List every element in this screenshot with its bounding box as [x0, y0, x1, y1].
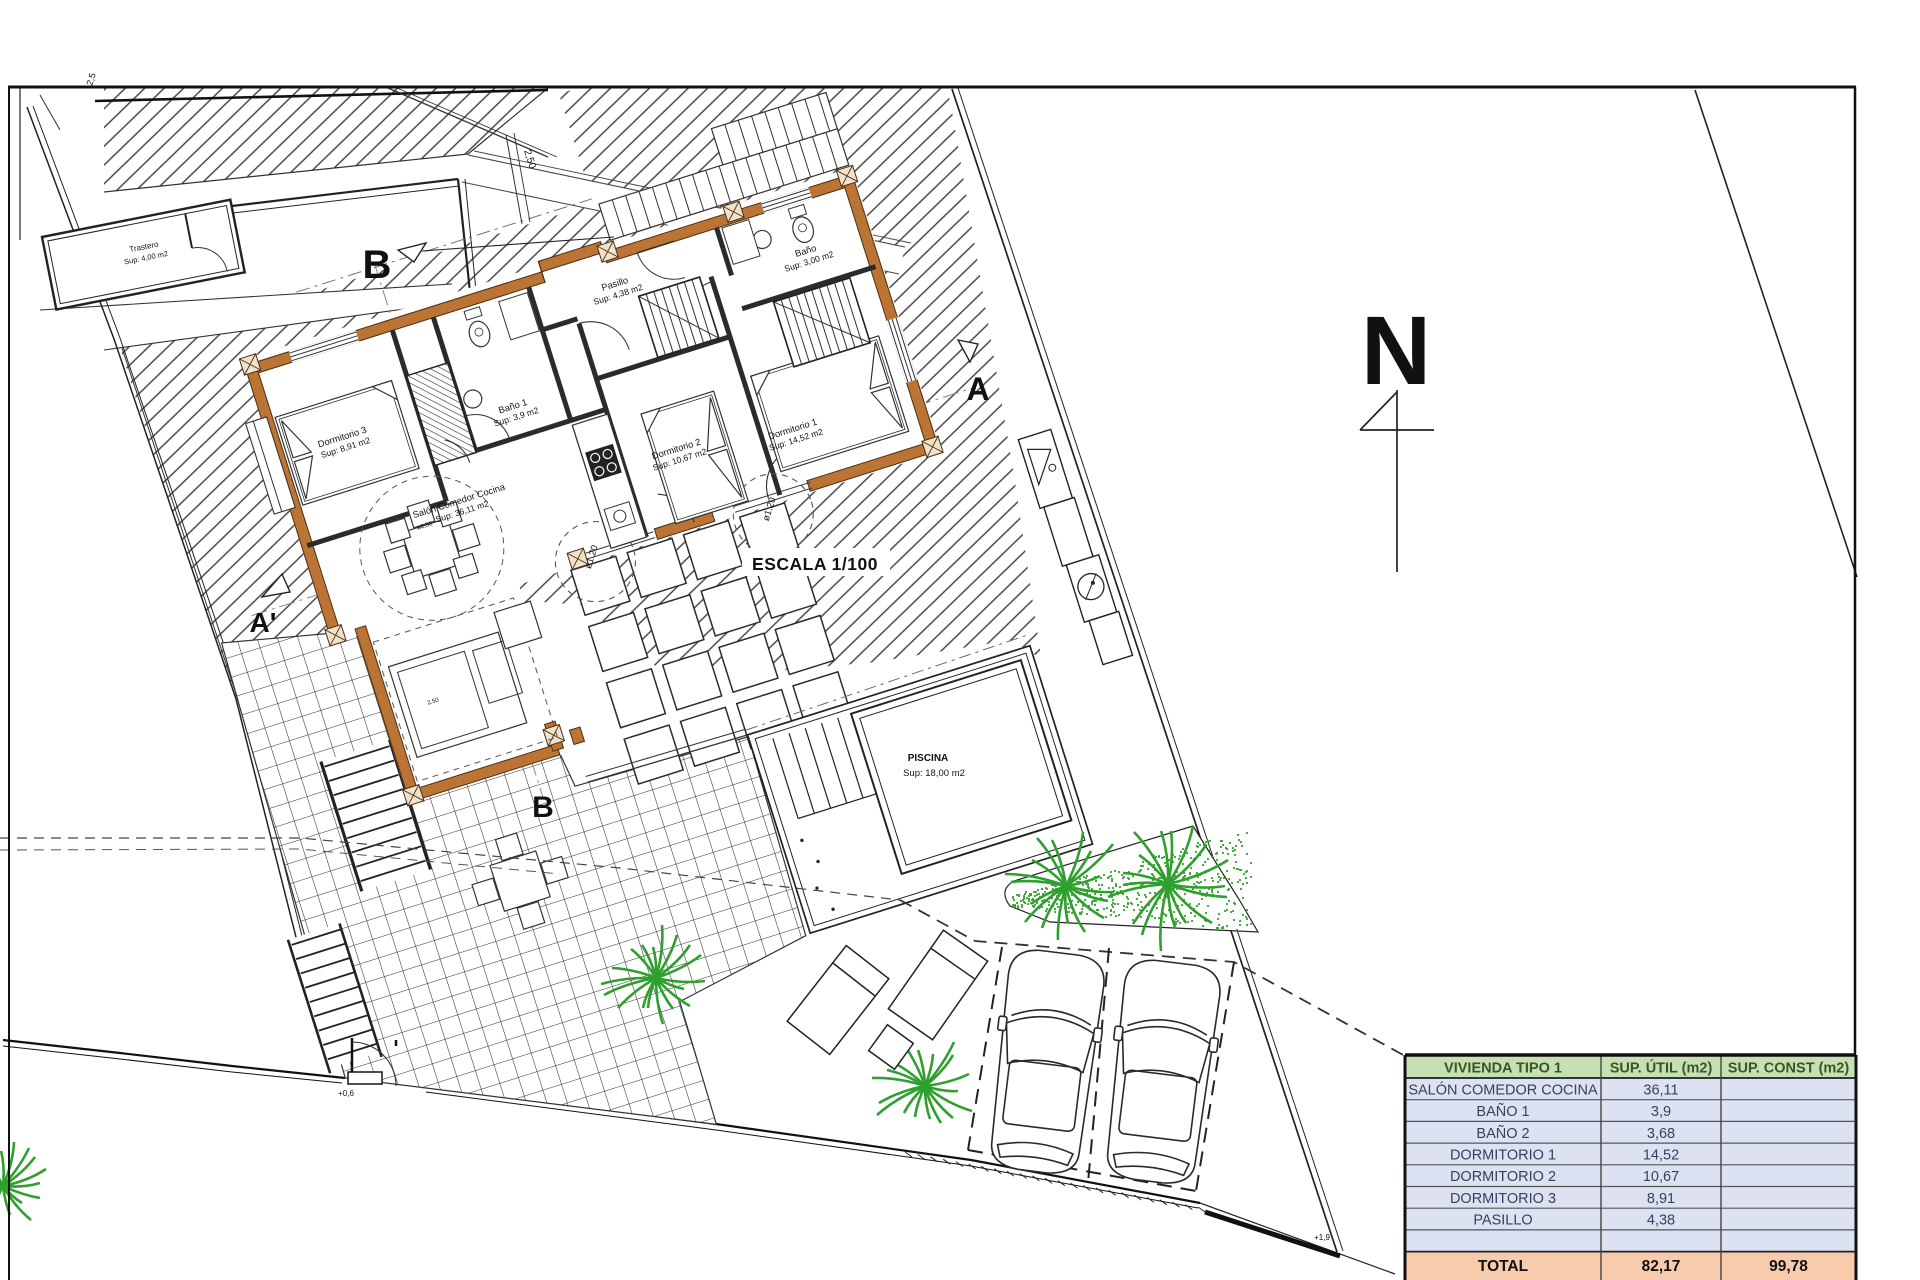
svg-text:VIVIENDA TIPO 1: VIVIENDA TIPO 1: [1444, 1061, 1562, 1077]
svg-text:SUP. ÚTIL (m2): SUP. ÚTIL (m2): [1610, 1059, 1713, 1077]
svg-text:ESCALA 1/100: ESCALA 1/100: [752, 554, 878, 574]
svg-text:Sup: 18,00 m2: Sup: 18,00 m2: [903, 768, 965, 779]
svg-text:10,67: 10,67: [1643, 1169, 1679, 1185]
svg-text:99,78: 99,78: [1769, 1258, 1808, 1275]
svg-text:3,9: 3,9: [1651, 1104, 1671, 1120]
svg-text:B: B: [363, 243, 392, 287]
svg-text:A': A': [250, 607, 277, 638]
svg-text:+1,9: +1,9: [1314, 1233, 1330, 1242]
svg-text:PISCINA: PISCINA: [908, 753, 949, 764]
svg-text:8,91: 8,91: [1647, 1191, 1675, 1207]
svg-text:PASILLO: PASILLO: [1473, 1213, 1532, 1229]
svg-text:N: N: [1361, 296, 1431, 405]
svg-text:DORMITORIO 1: DORMITORIO 1: [1450, 1147, 1556, 1163]
svg-text:36,11: 36,11: [1643, 1082, 1678, 1098]
svg-text:4,38: 4,38: [1647, 1213, 1675, 1229]
svg-text:B: B: [532, 791, 554, 824]
svg-text:A: A: [966, 371, 989, 407]
svg-text:DORMITORIO 3: DORMITORIO 3: [1450, 1191, 1556, 1207]
svg-text:TOTAL: TOTAL: [1478, 1258, 1528, 1275]
svg-text:DORMITORIO 2: DORMITORIO 2: [1450, 1169, 1556, 1185]
svg-text:3,68: 3,68: [1647, 1126, 1675, 1142]
svg-text:+0,6: +0,6: [338, 1089, 354, 1098]
svg-text:BAÑO 1: BAÑO 1: [1476, 1103, 1529, 1120]
svg-text:SALÓN COMEDOR COCINA: SALÓN COMEDOR COCINA: [1408, 1081, 1598, 1098]
svg-text:14,52: 14,52: [1643, 1147, 1679, 1163]
svg-text:82,17: 82,17: [1642, 1258, 1681, 1275]
svg-text:BAÑO 2: BAÑO 2: [1476, 1125, 1529, 1142]
svg-text:SUP. CONST (m2): SUP. CONST (m2): [1728, 1061, 1850, 1077]
